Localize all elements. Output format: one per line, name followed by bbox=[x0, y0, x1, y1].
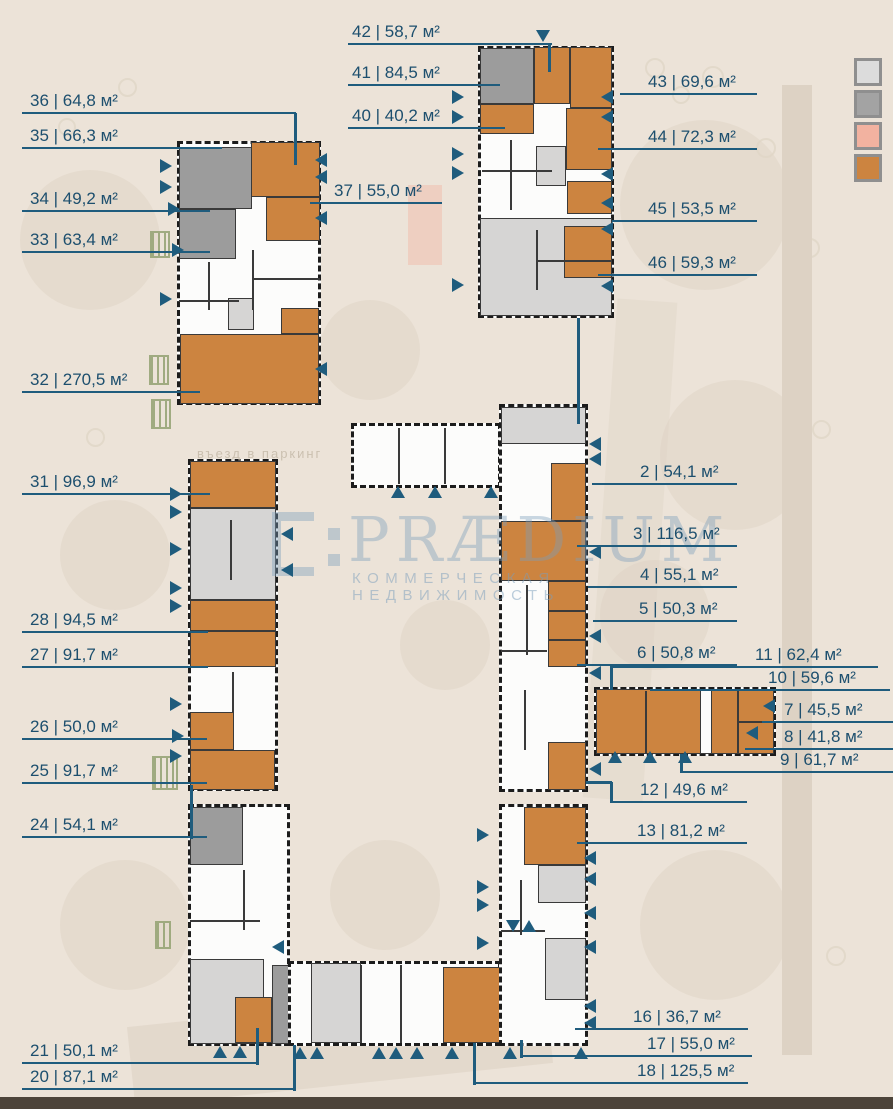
entrance-arrow-icon bbox=[391, 486, 405, 498]
unit-3-label: 3 | 116,5 м² bbox=[577, 524, 737, 547]
unit-11-label: 11 | 62,4 м² bbox=[610, 645, 878, 668]
entrance-arrow-icon bbox=[601, 110, 613, 124]
unit-5-label: 5 | 50,3 м² bbox=[593, 599, 737, 622]
entrance-arrow-icon bbox=[522, 920, 536, 932]
entrance-arrow-icon bbox=[410, 1047, 424, 1059]
unit-4-label: 4 | 55,1 м² bbox=[588, 565, 737, 588]
unit-42-label: 42 | 58,7 м² bbox=[348, 22, 552, 45]
entrance-arrow-icon bbox=[506, 920, 520, 932]
entrance-arrow-icon bbox=[477, 898, 489, 912]
entrance-arrow-icon bbox=[608, 751, 622, 763]
lobby-shape bbox=[501, 407, 586, 444]
unit-27-label: 27 | 91,7 м² bbox=[22, 645, 208, 668]
unit-25-label: 25 | 91,7 м² bbox=[22, 761, 207, 784]
entrance-arrow-icon bbox=[477, 828, 489, 842]
entrance-arrow-icon bbox=[281, 527, 293, 541]
site-road-strip bbox=[0, 1097, 893, 1109]
unit-32-label: 32 | 270,5 м² bbox=[22, 370, 200, 393]
entrance-arrow-icon bbox=[281, 563, 293, 577]
entrance-arrow-icon bbox=[584, 851, 596, 865]
unit-2-label: 2 | 54,1 м² bbox=[592, 462, 737, 485]
unit-42-shape bbox=[534, 47, 570, 104]
unit-12-label: 12 | 49,6 м² bbox=[612, 780, 747, 803]
unit-43-label: 43 | 69,6 м² bbox=[620, 72, 757, 95]
unit-33-label: 33 | 63,4 м² bbox=[22, 230, 210, 253]
entrance-arrow-icon bbox=[310, 1047, 324, 1059]
entrance-arrow-icon bbox=[315, 153, 327, 167]
legend-swatch-pink bbox=[854, 122, 882, 150]
floor-plan-canvas: въезд в паркинг bbox=[0, 0, 893, 1109]
unit-46-label: 46 | 59,3 м² bbox=[598, 253, 757, 276]
unit-21-shape bbox=[235, 997, 272, 1043]
unit-32-shape bbox=[180, 334, 319, 404]
stairs-icon bbox=[155, 921, 171, 949]
wing-corridor-shape bbox=[700, 689, 712, 754]
unit-2-shape bbox=[551, 463, 586, 521]
stair-core bbox=[228, 298, 254, 330]
unit-32-shape bbox=[281, 308, 319, 334]
entrance-arrow-icon bbox=[584, 872, 596, 886]
entrance-arrow-icon bbox=[170, 542, 182, 556]
unit-31-label: 31 | 96,9 м² bbox=[22, 472, 210, 495]
entrance-arrow-icon bbox=[589, 437, 601, 451]
watermark-logo-icon bbox=[272, 512, 314, 576]
stair-core bbox=[536, 146, 566, 186]
entrance-arrow-icon bbox=[589, 545, 601, 559]
stairs-icon bbox=[151, 399, 171, 429]
unit-16-label: 16 | 36,7 м² bbox=[575, 1007, 748, 1030]
entrance-arrow-icon bbox=[160, 292, 172, 306]
entrance-arrow-icon bbox=[477, 936, 489, 950]
entrance-arrow-icon bbox=[452, 147, 464, 161]
entrance-arrow-icon bbox=[428, 486, 442, 498]
entrance-arrow-icon bbox=[272, 940, 284, 954]
watermark-logo-icon bbox=[328, 554, 340, 566]
entrance-arrow-icon bbox=[601, 222, 613, 236]
entrance-arrow-icon bbox=[601, 90, 613, 104]
unit-4-shape bbox=[548, 581, 586, 611]
entrance-arrow-icon bbox=[643, 751, 657, 763]
unit-17-label: 17 | 55,0 м² bbox=[522, 1034, 752, 1057]
unit-28-label: 28 | 94,5 м² bbox=[22, 610, 208, 633]
unit-9-label: 9 | 61,7 м² bbox=[680, 750, 893, 773]
entrance-arrow-icon bbox=[170, 697, 182, 711]
entrance-arrow-icon bbox=[160, 159, 172, 173]
entrance-arrow-icon bbox=[452, 90, 464, 104]
entrance-arrow-icon bbox=[589, 629, 601, 643]
entrance-arrow-icon bbox=[452, 166, 464, 180]
parking-entrance-label: въезд в паркинг bbox=[197, 446, 322, 461]
unit-40-label: 40 | 40,2 м² bbox=[348, 106, 505, 129]
unit-20-label: 20 | 87,1 м² bbox=[22, 1067, 295, 1090]
unit-18-label: 18 | 125,5 м² bbox=[475, 1061, 748, 1084]
legend-swatch-orange bbox=[854, 154, 882, 182]
entrance-arrow-icon bbox=[315, 362, 327, 376]
entrance-arrow-icon bbox=[584, 906, 596, 920]
unit-13-label: 13 | 81,2 м² bbox=[577, 821, 747, 844]
unit-21-label: 21 | 50,1 м² bbox=[22, 1041, 258, 1064]
ground-unit-shape bbox=[545, 938, 586, 1000]
unit-7-label: 7 | 45,5 м² bbox=[762, 700, 893, 723]
entrance-arrow-icon bbox=[503, 1047, 517, 1059]
entrance-arrow-icon bbox=[452, 278, 464, 292]
entrance-arrow-icon bbox=[589, 762, 601, 776]
unit-5-shape bbox=[548, 611, 586, 640]
entrance-arrow-icon bbox=[589, 666, 601, 680]
unit-34-label: 34 | 49,2 м² bbox=[22, 189, 210, 212]
ground-unit-shape bbox=[311, 963, 361, 1043]
entrance-arrow-icon bbox=[315, 211, 327, 225]
building-connector-mid bbox=[351, 423, 501, 488]
ground-unit-shape bbox=[190, 508, 276, 600]
unit-26-label: 26 | 50,0 м² bbox=[22, 717, 207, 740]
unit-41-label: 41 | 84,5 м² bbox=[348, 63, 500, 86]
unit-35-label: 35 | 66,3 м² bbox=[22, 126, 222, 149]
unit-24-label: 24 | 54,1 м² bbox=[22, 815, 207, 838]
legend-swatch-gray bbox=[854, 90, 882, 118]
unit-36-label: 36 | 64,8 м² bbox=[22, 91, 296, 114]
entrance-arrow-icon bbox=[372, 1047, 386, 1059]
ground-unit-shape bbox=[538, 865, 586, 903]
entrance-arrow-icon bbox=[170, 505, 182, 519]
unit-44-label: 44 | 72,3 м² bbox=[598, 127, 757, 150]
entrance-arrow-icon bbox=[601, 167, 613, 181]
unit-8-label: 8 | 41,8 м² bbox=[745, 727, 893, 750]
entrance-arrow-icon bbox=[389, 1047, 403, 1059]
entrance-arrow-icon bbox=[484, 486, 498, 498]
entrance-arrow-icon bbox=[477, 880, 489, 894]
entrance-arrow-icon bbox=[601, 279, 613, 293]
unit-18-shape bbox=[443, 967, 502, 1043]
unit-3-shape bbox=[501, 521, 586, 581]
unit-10-label: 10 | 59,6 м² bbox=[650, 668, 890, 691]
unit-37-label: 37 | 55,0 м² bbox=[310, 181, 442, 204]
entrance-arrow-icon bbox=[170, 581, 182, 595]
legend-swatch-white bbox=[854, 58, 882, 86]
entrance-arrow-icon bbox=[445, 1047, 459, 1059]
unit-12-shape bbox=[548, 742, 586, 790]
entrance-arrow-icon bbox=[584, 940, 596, 954]
watermark-logo-icon bbox=[328, 528, 340, 540]
unit-45-label: 45 | 53,5 м² bbox=[612, 199, 757, 222]
